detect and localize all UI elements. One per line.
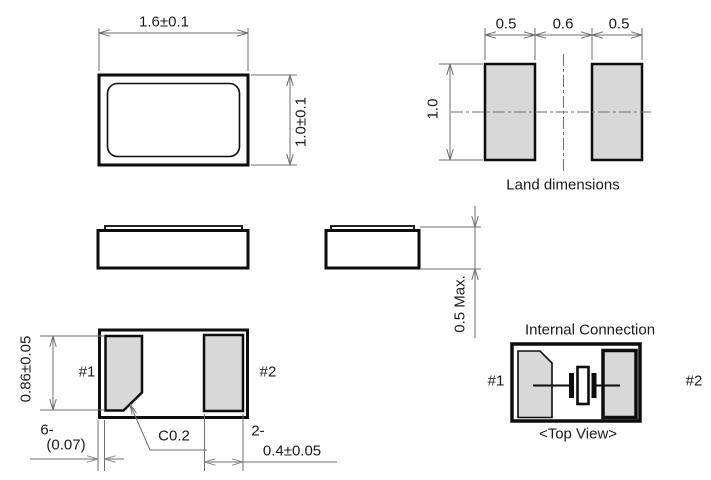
max-height-label: 0.5 Max. <box>453 275 468 333</box>
technical-drawing-page: 1.6±0.1 1.0±0.1 0.5 0.6 0.5 1.0 Land dim… <box>0 0 711 480</box>
land-gap-label: 0.6 <box>553 17 574 32</box>
top-view-width-dimension <box>99 28 248 71</box>
crystal-plate-left <box>569 373 574 398</box>
top-view-caption: <Top View> <box>539 427 617 442</box>
max-height-dimension <box>420 206 481 338</box>
ic-pad1-label: #1 <box>488 374 505 389</box>
clearance-qty-label: 6- <box>40 423 53 438</box>
top-view-height-dimension <box>251 75 297 165</box>
pad-width-qty-label: 2- <box>251 424 264 439</box>
side-view-body <box>98 231 248 269</box>
pad-height-label: 0.86±0.05 <box>19 336 34 403</box>
crystal-element <box>578 367 589 404</box>
side-view <box>98 226 248 268</box>
bottom-view-pad1-label: #1 <box>79 365 96 380</box>
bottom-view-pad2-label: #2 <box>260 365 277 380</box>
ic-pad1-chamfered <box>518 351 552 418</box>
land-left-pad-width-label: 0.5 <box>496 17 517 32</box>
end-view-body <box>326 231 419 269</box>
clearance-value-label: (0.07) <box>46 438 85 453</box>
crystal-plate-right <box>592 373 597 398</box>
top-view-width-label: 1.6±0.1 <box>139 15 189 30</box>
bottom-view-pad1-chamfered <box>106 336 143 411</box>
ic-pad2 <box>603 351 636 418</box>
land-pad-height-label: 1.0 <box>426 99 441 120</box>
bottom-view-pad2 <box>204 335 243 411</box>
land-pattern <box>439 28 651 172</box>
top-view-lid-outline <box>108 84 240 157</box>
land-caption: Land dimensions <box>506 178 619 193</box>
drawing-canvas <box>0 0 711 480</box>
pad-width-value-label: 0.4±0.05 <box>263 444 321 459</box>
chamfer-label: C0.2 <box>158 429 190 444</box>
land-right-pad-width-label: 0.5 <box>609 17 630 32</box>
internal-connection-title: Internal Connection <box>525 323 655 338</box>
internal-connection-view <box>512 344 640 421</box>
top-view <box>99 28 297 165</box>
ic-pad2-label: #2 <box>686 374 703 389</box>
top-view-height-label: 1.0±0.1 <box>294 97 309 147</box>
